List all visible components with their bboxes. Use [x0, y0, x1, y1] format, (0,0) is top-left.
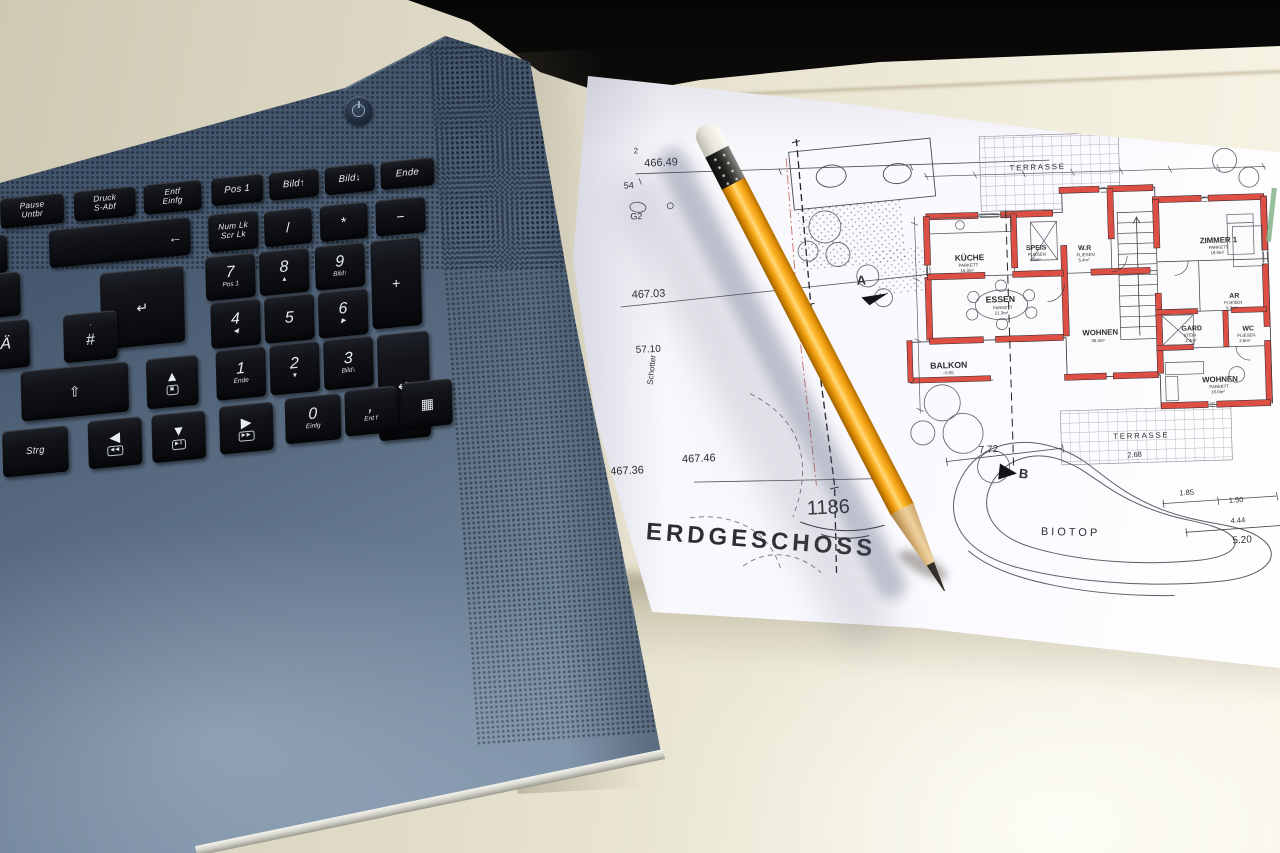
room-label-wohnen-mid: WOHNEN: [1082, 327, 1118, 337]
svg-text:2.4m²: 2.4m²: [1185, 338, 1197, 343]
key-ende: Ende: [380, 157, 434, 190]
room-label-balkon: BALKON: [930, 360, 967, 371]
display-icon: ▣: [167, 384, 179, 395]
svg-text:5.4m²: 5.4m²: [1078, 257, 1090, 262]
dim-185: 1.85: [1179, 488, 1194, 498]
key-bild-up: Bild↑: [269, 168, 320, 201]
rewind-icon: ◀◀: [107, 445, 123, 456]
svg-text:4.6m²: 4.6m²: [1030, 257, 1042, 262]
outbuilding: [789, 138, 936, 210]
room-label-gard: GARD: [1181, 325, 1202, 333]
key-np-6: 6▶: [318, 288, 369, 339]
key-acute: ´: [0, 234, 8, 276]
green-boundary-mark: [1266, 188, 1277, 242]
svg-text:−0.05: −0.05: [943, 370, 955, 375]
elevation-467-46: 467.46: [682, 452, 716, 466]
svg-text:15.3m²: 15.3m²: [960, 268, 974, 273]
svg-text:18.0m²: 18.0m²: [1211, 389, 1225, 394]
key-druck: Druck S-Abf: [74, 186, 137, 222]
play-pause-icon: ▶‖: [172, 439, 186, 450]
key-pause: Pause Untbr: [0, 193, 64, 229]
svg-text:2: 2: [633, 146, 638, 155]
elevation-467-36: 467.36: [610, 464, 644, 478]
svg-text:21.3m²: 21.3m²: [995, 310, 1009, 315]
schotter-note: Schotter: [646, 354, 658, 385]
key-np-plus: +: [370, 237, 422, 330]
key-np-1: 1Ende: [215, 346, 266, 401]
fast-forward-icon: ▶▶: [239, 430, 255, 441]
key-np-9: 9Bild↑: [315, 242, 366, 291]
section-a-label: A: [856, 272, 866, 287]
photo-scene: TERRASSE TERRASSE: [0, 0, 1280, 853]
calculator-icon: ▦: [420, 396, 434, 412]
key-media-prev: ◀◀◀: [88, 416, 143, 469]
key-np-8: 8▲: [259, 247, 310, 296]
dim-772: 7.72: [978, 444, 999, 456]
pond-label: BIOTOP: [1041, 526, 1101, 539]
key-backspace: ←: [49, 217, 191, 269]
length-57: 57.10: [636, 344, 662, 356]
key-plus-star: *+ ~: [0, 271, 21, 320]
key-numlock: Num Lk Scr Lk: [208, 210, 259, 253]
key-np-7: 7Pos 1: [205, 252, 256, 301]
key-bild-down: Bild↓: [324, 163, 375, 196]
room-label-ar: AR: [1229, 293, 1239, 300]
dim-444: 4.44: [1230, 515, 1245, 525]
svg-text:36.3m²: 36.3m²: [1091, 338, 1105, 343]
key-np-multiply: *: [319, 201, 368, 242]
dim-520: 5.20: [1232, 534, 1253, 546]
room-label-terrasse-lower: TERRASSE: [1113, 430, 1169, 441]
key-np-divide: /: [264, 207, 313, 248]
key-np-minus: −: [375, 196, 426, 237]
key-np-5: 5: [264, 293, 315, 344]
key-calc: ▦: [402, 378, 453, 429]
room-label-terrasse-upper: TERRASSE: [1009, 162, 1065, 173]
room-label-zimmer1: ZIMMER 1: [1200, 235, 1238, 245]
svg-text:2.6m²: 2.6m²: [1239, 338, 1251, 343]
key-display-toggle: ▲▣: [146, 354, 199, 409]
svg-text:5.0m²: 5.0m²: [1226, 305, 1238, 310]
key-np-2: 2▼: [269, 341, 320, 396]
dim-150: 1.50: [1229, 495, 1244, 505]
room-label-essen: ESSEN: [986, 294, 1016, 305]
section-b-label: B: [1018, 466, 1029, 482]
house: TERRASSE TERRASSE: [901, 128, 1274, 469]
keyboard: Pause Untbr Druck S-Abf Entf Einfg Pos 1…: [0, 152, 492, 501]
key-a-umlaut: Ä: [0, 318, 30, 371]
key-np-0: 0Einfg: [285, 393, 342, 444]
key-np-3: 3Bild↓: [323, 336, 374, 391]
key-pos1: Pos 1: [211, 173, 263, 206]
room-label-kueche: KÜCHE: [955, 252, 985, 263]
room-label-wohnen: WOHNEN: [1202, 374, 1238, 384]
dim-268: 2.68: [1127, 450, 1142, 460]
svg-text:16.0m²: 16.0m²: [1210, 250, 1224, 255]
key-media-play: ▼▶‖: [151, 410, 206, 463]
key-shift: ⇧: [20, 361, 129, 421]
key-hash: '#: [63, 310, 118, 363]
room-label-wr: W.R: [1078, 245, 1091, 252]
power-button: [344, 96, 374, 126]
key-strg: Strg: [2, 425, 69, 477]
key-np-4: 4◀: [210, 298, 261, 349]
key-media-next: ▶▶▶: [219, 401, 274, 454]
room-label-wc: WC: [1242, 325, 1254, 332]
key-np-comma: ,Ent f: [344, 386, 397, 437]
key-entf-einfg: Entf Einfg: [143, 179, 202, 215]
